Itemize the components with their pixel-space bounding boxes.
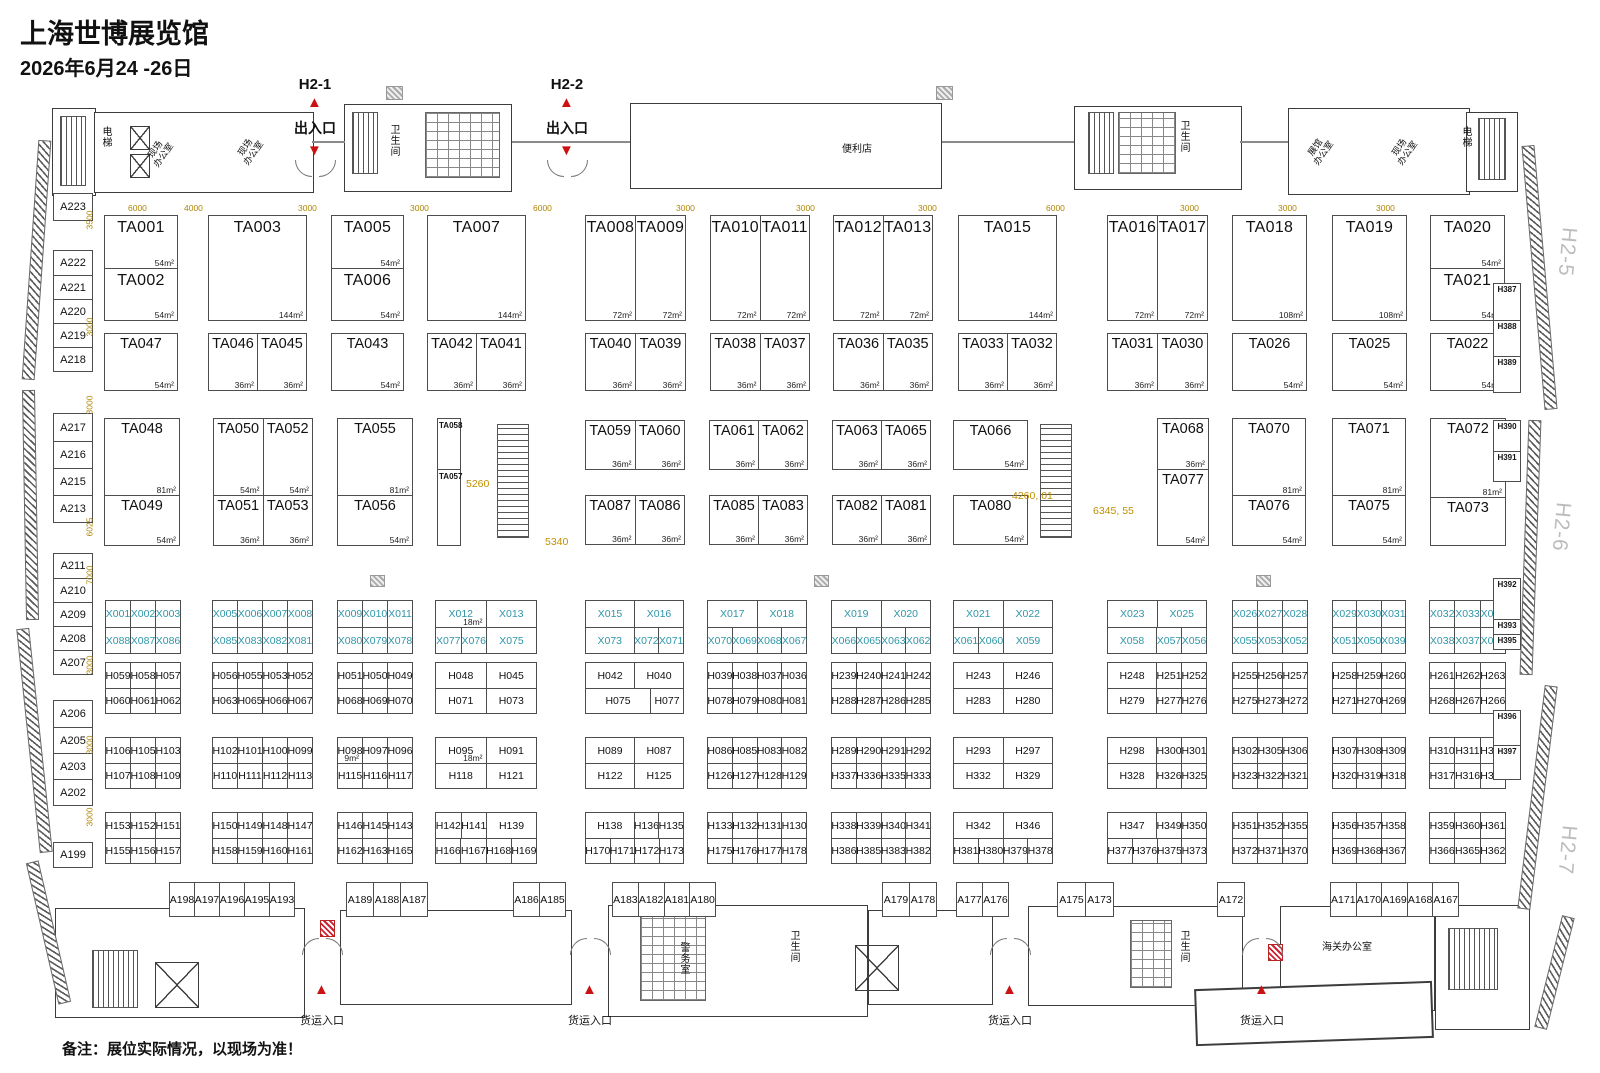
booth-id: X037 bbox=[1455, 635, 1480, 647]
booth-X055: X055 bbox=[1233, 628, 1257, 653]
booth-H393: H393 bbox=[1494, 620, 1520, 634]
booth-H052: H052 bbox=[287, 663, 312, 688]
booth-block: TA058TA057 bbox=[437, 418, 461, 546]
booth-TA058: TA058 bbox=[438, 419, 460, 469]
booth-id: H279 bbox=[1119, 695, 1144, 707]
booth-H177: H177 bbox=[757, 839, 782, 863]
booth-area: 54m² bbox=[1005, 459, 1024, 469]
booth-TA060: TA06036m² bbox=[635, 421, 685, 469]
dimension-label: 3000 bbox=[84, 656, 94, 675]
booth-id: X031 bbox=[1381, 608, 1406, 620]
booth-id: H078 bbox=[707, 695, 732, 707]
booth-TA047: TA04754m² bbox=[105, 334, 177, 390]
booth-block: H338H339H340H341H386H385H383H382 bbox=[831, 812, 931, 864]
booth-id: H302 bbox=[1232, 745, 1257, 757]
booth-H111: H111 bbox=[237, 764, 262, 788]
booth-id: X026 bbox=[1233, 608, 1258, 620]
booth-id: A219 bbox=[60, 330, 86, 342]
booth-TA050: TA05054m² bbox=[214, 419, 263, 495]
booth-id: A206 bbox=[60, 708, 86, 720]
booth-id: TA032 bbox=[1011, 336, 1053, 352]
booth-id: H066 bbox=[262, 695, 287, 707]
booth-id: H070 bbox=[387, 695, 412, 707]
booth-id: A186 bbox=[514, 894, 539, 906]
booth-id: X067 bbox=[782, 635, 807, 647]
booth-H132: H132 bbox=[732, 813, 757, 838]
booth-id: A180 bbox=[690, 894, 715, 906]
booth-H351: H351 bbox=[1233, 813, 1257, 838]
booth-block: H146H145H143H162H163H165 bbox=[337, 812, 413, 864]
booth-H397: H397 bbox=[1494, 746, 1520, 779]
booth-id: H053 bbox=[262, 670, 287, 682]
booth-id: A195 bbox=[245, 894, 270, 906]
booth-id: TA037 bbox=[764, 336, 806, 352]
booth-id: TA080 bbox=[970, 498, 1012, 514]
booth-id: TA070 bbox=[1248, 421, 1290, 437]
booth-H062: H062 bbox=[155, 689, 180, 713]
booth-id: X057 bbox=[1157, 635, 1182, 647]
booth-H058: H058 bbox=[130, 663, 155, 688]
booth-H082: H082 bbox=[781, 738, 806, 763]
booth-H078: H078 bbox=[708, 689, 732, 713]
booth-area: 54m² bbox=[1283, 535, 1302, 545]
booth-H176: H176 bbox=[732, 839, 757, 863]
booth-id: H049 bbox=[387, 670, 412, 682]
booth-H118: H118 bbox=[436, 764, 486, 788]
booth-X080: X080 bbox=[338, 628, 362, 653]
dimension-label: 3000 bbox=[796, 203, 815, 213]
booth-block: TA01672m²TA01772m² bbox=[1107, 215, 1208, 321]
booth-block: A199 bbox=[53, 842, 93, 868]
booth-id: H335 bbox=[881, 770, 906, 782]
booth-id: X002 bbox=[131, 608, 156, 620]
booth-id: H107 bbox=[105, 770, 130, 782]
booth-H382: H382 bbox=[905, 839, 930, 863]
booth-H157: H157 bbox=[155, 839, 180, 863]
booth-block: H153H152H151H155H156H157 bbox=[105, 812, 181, 864]
booth-H371: H371 bbox=[1257, 839, 1282, 863]
booth-H302: H302 bbox=[1233, 738, 1257, 763]
booth-H387: H387 bbox=[1494, 284, 1520, 320]
booth-id: H366 bbox=[1430, 845, 1455, 857]
booth-id: TA021 bbox=[1444, 272, 1491, 290]
booth-X020: X020 bbox=[881, 601, 931, 627]
booth-block: TA04354m² bbox=[331, 333, 404, 391]
booth-id: H073 bbox=[499, 695, 524, 707]
booth-X021: X021 bbox=[954, 601, 1003, 627]
booth-block: TA007144m² bbox=[427, 215, 526, 321]
booth-H121: H121 bbox=[486, 764, 537, 788]
booth-A173: A173 bbox=[1085, 883, 1113, 916]
booth-area: 72m² bbox=[613, 310, 632, 320]
booth-H045: H045 bbox=[486, 663, 537, 688]
booth-id: A221 bbox=[60, 282, 86, 294]
booth-X033: X033 bbox=[1454, 601, 1479, 627]
booth-block: TA00554m²TA00654m² bbox=[331, 215, 404, 321]
booth-id: H379 bbox=[1003, 845, 1028, 857]
booth-id: H285 bbox=[906, 695, 931, 707]
booth-H149: H149 bbox=[237, 813, 262, 838]
booth-TA011: TA01172m² bbox=[760, 216, 810, 320]
booth-id: A193 bbox=[270, 894, 295, 906]
booth-id: H370 bbox=[1282, 845, 1307, 857]
booth-H380: H380 bbox=[978, 839, 1003, 863]
booth-id: H170 bbox=[585, 845, 610, 857]
booth-X077: X077 bbox=[436, 628, 461, 653]
booth-id: A205 bbox=[60, 735, 86, 747]
dimension-label: 3000 bbox=[84, 396, 94, 415]
booth-block: H359H360H361H366H365H362 bbox=[1429, 812, 1506, 864]
booth-H081: H081 bbox=[781, 689, 806, 713]
booth-A189: A189 bbox=[347, 883, 373, 916]
booth-H053: H053 bbox=[262, 663, 287, 688]
booth-id: X070 bbox=[708, 635, 733, 647]
booth-H352: H352 bbox=[1257, 813, 1282, 838]
booth-area: 54m² bbox=[1005, 534, 1024, 544]
booth-id: TA048 bbox=[121, 421, 163, 437]
booth-id: TA011 bbox=[762, 219, 808, 237]
booth-id: TA040 bbox=[590, 336, 632, 352]
booth-X052: X052 bbox=[1282, 628, 1307, 653]
booth-id: A215 bbox=[60, 476, 86, 488]
booth-id: H167 bbox=[461, 845, 486, 857]
booth-block: A171A170A169A168A167 bbox=[1330, 882, 1459, 917]
booth-id: A167 bbox=[1433, 894, 1458, 906]
booth-id: TA017 bbox=[1159, 219, 1206, 237]
booth-H125: H125 bbox=[634, 764, 683, 788]
booth-X022: X022 bbox=[1003, 601, 1053, 627]
booth-area: 36m² bbox=[235, 380, 254, 390]
booth-id: H361 bbox=[1480, 820, 1505, 832]
booth-A206: A206 bbox=[54, 701, 92, 727]
booth-id: H145 bbox=[362, 820, 387, 832]
booth-id: X025 bbox=[1169, 608, 1194, 620]
booth-id: X009 bbox=[338, 608, 363, 620]
freight-arrow-up: ▲ bbox=[1002, 982, 1017, 997]
booth-id: TA061 bbox=[713, 423, 755, 439]
booth-id: H113 bbox=[288, 770, 312, 782]
booth-H347: H347 bbox=[1108, 813, 1156, 838]
booth-H105: H105 bbox=[130, 738, 155, 763]
booth-block: X005X006X007X008X085X083X082X081 bbox=[212, 600, 313, 654]
booth-H158: H158 bbox=[213, 839, 237, 863]
booth-block: TA018108m² bbox=[1232, 215, 1307, 321]
booth-area: 144m² bbox=[1029, 310, 1053, 320]
booth-TA056: TA05654m² bbox=[338, 496, 412, 545]
booth-id: H097 bbox=[362, 745, 387, 757]
booth-TA008: TA00872m² bbox=[586, 216, 635, 320]
dimension-label: 3000 bbox=[918, 203, 937, 213]
hatch-marker bbox=[936, 86, 953, 100]
booth-H337: H337 bbox=[832, 764, 856, 788]
booth-TA037: TA03736m² bbox=[760, 334, 810, 390]
booth-id: H266 bbox=[1480, 695, 1505, 707]
booth-id: H380 bbox=[978, 845, 1003, 857]
booth-H113: H113 bbox=[287, 764, 312, 788]
booth-id: H166 bbox=[436, 845, 461, 857]
booth-id: H261 bbox=[1430, 670, 1455, 682]
booth-H096: H096 bbox=[387, 738, 412, 763]
room-label: 卫生间 bbox=[386, 124, 401, 157]
booth-id: H051 bbox=[337, 670, 362, 682]
booth-X062: X062 bbox=[905, 628, 930, 653]
booth-A170: A170 bbox=[1356, 883, 1382, 916]
booth-TA042: TA04236m² bbox=[428, 334, 476, 390]
booth-block: A175A173 bbox=[1057, 882, 1114, 917]
booth-TA038: TA03836m² bbox=[711, 334, 760, 390]
wall-segment bbox=[94, 112, 314, 193]
booth-block: H150H149H148H147H158H159H160H161 bbox=[212, 812, 313, 864]
booth-id: H069 bbox=[362, 695, 387, 707]
booth-A187: A187 bbox=[400, 883, 427, 916]
booth-block: H392H393H395 bbox=[1493, 578, 1521, 650]
wall-segment bbox=[630, 103, 942, 189]
booth-TA017: TA01772m² bbox=[1157, 216, 1207, 320]
booth-id: H305 bbox=[1257, 745, 1282, 757]
booth-id: H242 bbox=[906, 670, 931, 682]
booth-id: H332 bbox=[966, 770, 991, 782]
booth-id: H328 bbox=[1119, 770, 1144, 782]
booth-id: H065 bbox=[237, 695, 262, 707]
booth-H148: H148 bbox=[262, 813, 287, 838]
booth-block: A217A216A215A213 bbox=[53, 413, 93, 523]
booth-H369: H369 bbox=[1333, 839, 1356, 863]
booth-id: A199 bbox=[60, 849, 86, 861]
booth-H326: H326 bbox=[1156, 764, 1181, 788]
hatch-marker bbox=[386, 86, 403, 100]
room-label: 卫生间 bbox=[1176, 930, 1191, 963]
booth-id: H362 bbox=[1480, 845, 1505, 857]
booth-H252: H252 bbox=[1181, 663, 1206, 688]
booth-id: X030 bbox=[1357, 608, 1382, 620]
dimension-label: 4260, 01 bbox=[1012, 490, 1053, 502]
booth-id: X077 bbox=[436, 635, 461, 647]
booth-H246: H246 bbox=[1003, 663, 1053, 688]
booth-id: TA062 bbox=[762, 423, 804, 439]
booth-H127: H127 bbox=[732, 764, 757, 788]
booth-H376: H376 bbox=[1132, 839, 1157, 863]
booth-id: H081 bbox=[782, 695, 807, 707]
booth-id: H352 bbox=[1257, 820, 1282, 832]
stairs bbox=[1478, 118, 1506, 180]
booth-block: TA04754m² bbox=[104, 333, 178, 391]
booth-id: X088 bbox=[106, 635, 131, 647]
booth-id: H339 bbox=[856, 820, 881, 832]
booth-H288: H288 bbox=[832, 689, 856, 713]
booth-id: H099 bbox=[287, 745, 312, 757]
booth-id: H251 bbox=[1156, 670, 1181, 682]
booth-id: H105 bbox=[130, 745, 155, 757]
booth-H333: H333 bbox=[905, 764, 930, 788]
booth-id: TA016 bbox=[1109, 219, 1156, 237]
booth-id: TA063 bbox=[836, 423, 878, 439]
booth-A179: A179 bbox=[883, 883, 909, 916]
booth-H257: H257 bbox=[1282, 663, 1307, 688]
booth-TA061: TA06136m² bbox=[710, 421, 758, 469]
hazard-marker bbox=[320, 920, 335, 937]
booth-X010: X010 bbox=[362, 601, 387, 627]
hall-label: H2-6 bbox=[1547, 501, 1575, 552]
booth-X051: X051 bbox=[1333, 628, 1356, 653]
booth-H240: H240 bbox=[856, 663, 881, 688]
booth-H270: H270 bbox=[1356, 689, 1380, 713]
booth-H346: H346 bbox=[1003, 813, 1053, 838]
booth-H338: H338 bbox=[832, 813, 856, 838]
booth-block: H133H132H131H130H175H176H177H178 bbox=[707, 812, 807, 864]
booth-id: H252 bbox=[1181, 670, 1206, 682]
booth-id: TA085 bbox=[713, 498, 755, 514]
booth-id: H111 bbox=[238, 770, 262, 782]
booth-block: TA03136m²TA03036m² bbox=[1107, 333, 1208, 391]
booth-H150: H150 bbox=[213, 813, 237, 838]
booth-id: TA005 bbox=[344, 219, 391, 237]
booth-id: H062 bbox=[155, 695, 180, 707]
booth-id: H039 bbox=[707, 670, 732, 682]
booth-A221: A221 bbox=[54, 276, 92, 299]
booth-H263: H263 bbox=[1480, 663, 1505, 688]
booth-H152: H152 bbox=[130, 813, 155, 838]
booth-id: H132 bbox=[732, 820, 757, 832]
booth-area: 36m² bbox=[859, 534, 878, 544]
booth-X002: X002 bbox=[130, 601, 155, 627]
room-label: 便利店 bbox=[842, 140, 872, 155]
booth-H168: H168 bbox=[486, 839, 511, 863]
booth-id: X032 bbox=[1430, 608, 1455, 620]
freight-entrance-label: 货运入口 bbox=[285, 1012, 359, 1028]
booth-H159: H159 bbox=[237, 839, 262, 863]
booth-H357: H357 bbox=[1356, 813, 1380, 838]
booth-id: X038 bbox=[1430, 635, 1455, 647]
booth-id: H082 bbox=[782, 745, 807, 757]
booth-H310: H310 bbox=[1430, 738, 1454, 763]
booth-id: H118 bbox=[449, 770, 473, 782]
booth-block: X009X010X011X080X079X078 bbox=[337, 600, 413, 654]
booth-H086: H086 bbox=[708, 738, 732, 763]
booth-id: A217 bbox=[60, 422, 86, 434]
booth-H172: H172 bbox=[634, 839, 659, 863]
booth-H305: H305 bbox=[1257, 738, 1282, 763]
toilet-stalls bbox=[640, 915, 706, 1001]
booth-X058: X058 bbox=[1108, 628, 1156, 653]
booth-A172: A172 bbox=[1218, 883, 1244, 916]
booth-H259: H259 bbox=[1356, 663, 1380, 688]
booth-block: X019X020X066X065X063X062 bbox=[831, 600, 931, 654]
booth-id: X027 bbox=[1258, 608, 1283, 620]
booth-id: X086 bbox=[156, 635, 181, 647]
booth-H336: H336 bbox=[856, 764, 881, 788]
booth-A181: A181 bbox=[664, 883, 690, 916]
booth-H322: H322 bbox=[1257, 764, 1282, 788]
booth-id: TA010 bbox=[712, 219, 759, 237]
booth-X087: X087 bbox=[130, 628, 155, 653]
booth-block: TA015144m² bbox=[958, 215, 1057, 321]
booth-block: A172 bbox=[1217, 882, 1245, 917]
booth-id: X010 bbox=[363, 608, 388, 620]
booth-H161: H161 bbox=[287, 839, 312, 863]
booth-H297: H297 bbox=[1003, 738, 1053, 763]
booth-block: TA01072m²TA01172m² bbox=[710, 215, 810, 321]
booth-block: TA05936m²TA06036m² bbox=[585, 420, 685, 470]
booth-X039: X039 bbox=[1381, 628, 1405, 653]
booth-area: 72m² bbox=[663, 310, 682, 320]
booth-area: 54m² bbox=[1383, 535, 1402, 545]
outer-wall bbox=[22, 390, 39, 620]
booth-id: H371 bbox=[1257, 845, 1282, 857]
booth-X085: X085 bbox=[213, 628, 237, 653]
booth-id: X069 bbox=[732, 635, 757, 647]
booth-id: TA059 bbox=[589, 423, 631, 439]
booth-H248: H248 bbox=[1108, 663, 1156, 688]
booth-id: A211 bbox=[61, 560, 86, 572]
booth-X067: X067 bbox=[781, 628, 806, 653]
booth-X079: X079 bbox=[362, 628, 387, 653]
booth-id: H355 bbox=[1282, 820, 1307, 832]
booth-A196: A196 bbox=[219, 883, 244, 916]
booth-A202: A202 bbox=[54, 780, 92, 805]
booth-H321: H321 bbox=[1282, 764, 1307, 788]
outer-wall bbox=[1521, 145, 1557, 410]
dimension-label: 3000 bbox=[676, 203, 695, 213]
booth-H350: H350 bbox=[1181, 813, 1206, 838]
booth-H167: H167 bbox=[460, 839, 485, 863]
booth-id: H142 bbox=[436, 820, 461, 832]
booth-id: H087 bbox=[646, 745, 671, 757]
booth-id: X087 bbox=[131, 635, 156, 647]
booth-block: H261H262H263H268H267H266 bbox=[1429, 662, 1506, 714]
booth-id: TA087 bbox=[589, 498, 631, 514]
booth-block: TA06836m²TA07754m² bbox=[1157, 418, 1209, 546]
dimension-label: 6025 bbox=[84, 518, 94, 537]
booth-id: H329 bbox=[1015, 770, 1040, 782]
booth-id: H083 bbox=[757, 745, 782, 757]
booth-block: TA05581m²TA05654m² bbox=[337, 418, 413, 546]
booth-H365: H365 bbox=[1454, 839, 1479, 863]
booth-X027: X027 bbox=[1257, 601, 1282, 627]
booth-id: H136 bbox=[634, 820, 659, 832]
booth-block: H302H305H306H323H322H321 bbox=[1232, 737, 1308, 789]
booth-id: A170 bbox=[1357, 894, 1382, 906]
booth-X009: X009 bbox=[338, 601, 362, 627]
dimension-label: 6000 bbox=[128, 203, 147, 213]
booth-id: H055 bbox=[237, 670, 262, 682]
booth-block: H342H346H381H380H379H378 bbox=[953, 812, 1053, 864]
booth-id: TA025 bbox=[1349, 336, 1391, 352]
stairs bbox=[60, 116, 86, 186]
entrance-label: 出入口 bbox=[283, 118, 347, 138]
booth-id: H130 bbox=[782, 820, 807, 832]
hatch-marker bbox=[814, 575, 829, 587]
booth-H368: H368 bbox=[1356, 839, 1380, 863]
booth-block: TA00154m²TA00254m² bbox=[104, 215, 178, 321]
entrance-name: H2-2 bbox=[535, 76, 599, 93]
stairs bbox=[92, 950, 138, 1008]
booth-A168: A168 bbox=[1407, 883, 1433, 916]
booth-id: X083 bbox=[238, 635, 263, 647]
booth-id: H356 bbox=[1332, 820, 1357, 832]
booth-X006: X006 bbox=[237, 601, 262, 627]
booth-id: TA031 bbox=[1112, 336, 1154, 352]
booth-H101: H101 bbox=[237, 738, 262, 763]
booth-area: 54m² bbox=[157, 535, 176, 545]
booth-id: A210 bbox=[60, 585, 86, 597]
booth-A175: A175 bbox=[1058, 883, 1085, 916]
booth-X013: X013 bbox=[486, 601, 537, 627]
booth-TA086: TA08636m² bbox=[635, 496, 685, 544]
booth-id: H048 bbox=[448, 670, 473, 682]
booth-H163: H163 bbox=[362, 839, 387, 863]
booth-id: H050 bbox=[362, 670, 387, 682]
booth-id: X003 bbox=[156, 608, 181, 620]
